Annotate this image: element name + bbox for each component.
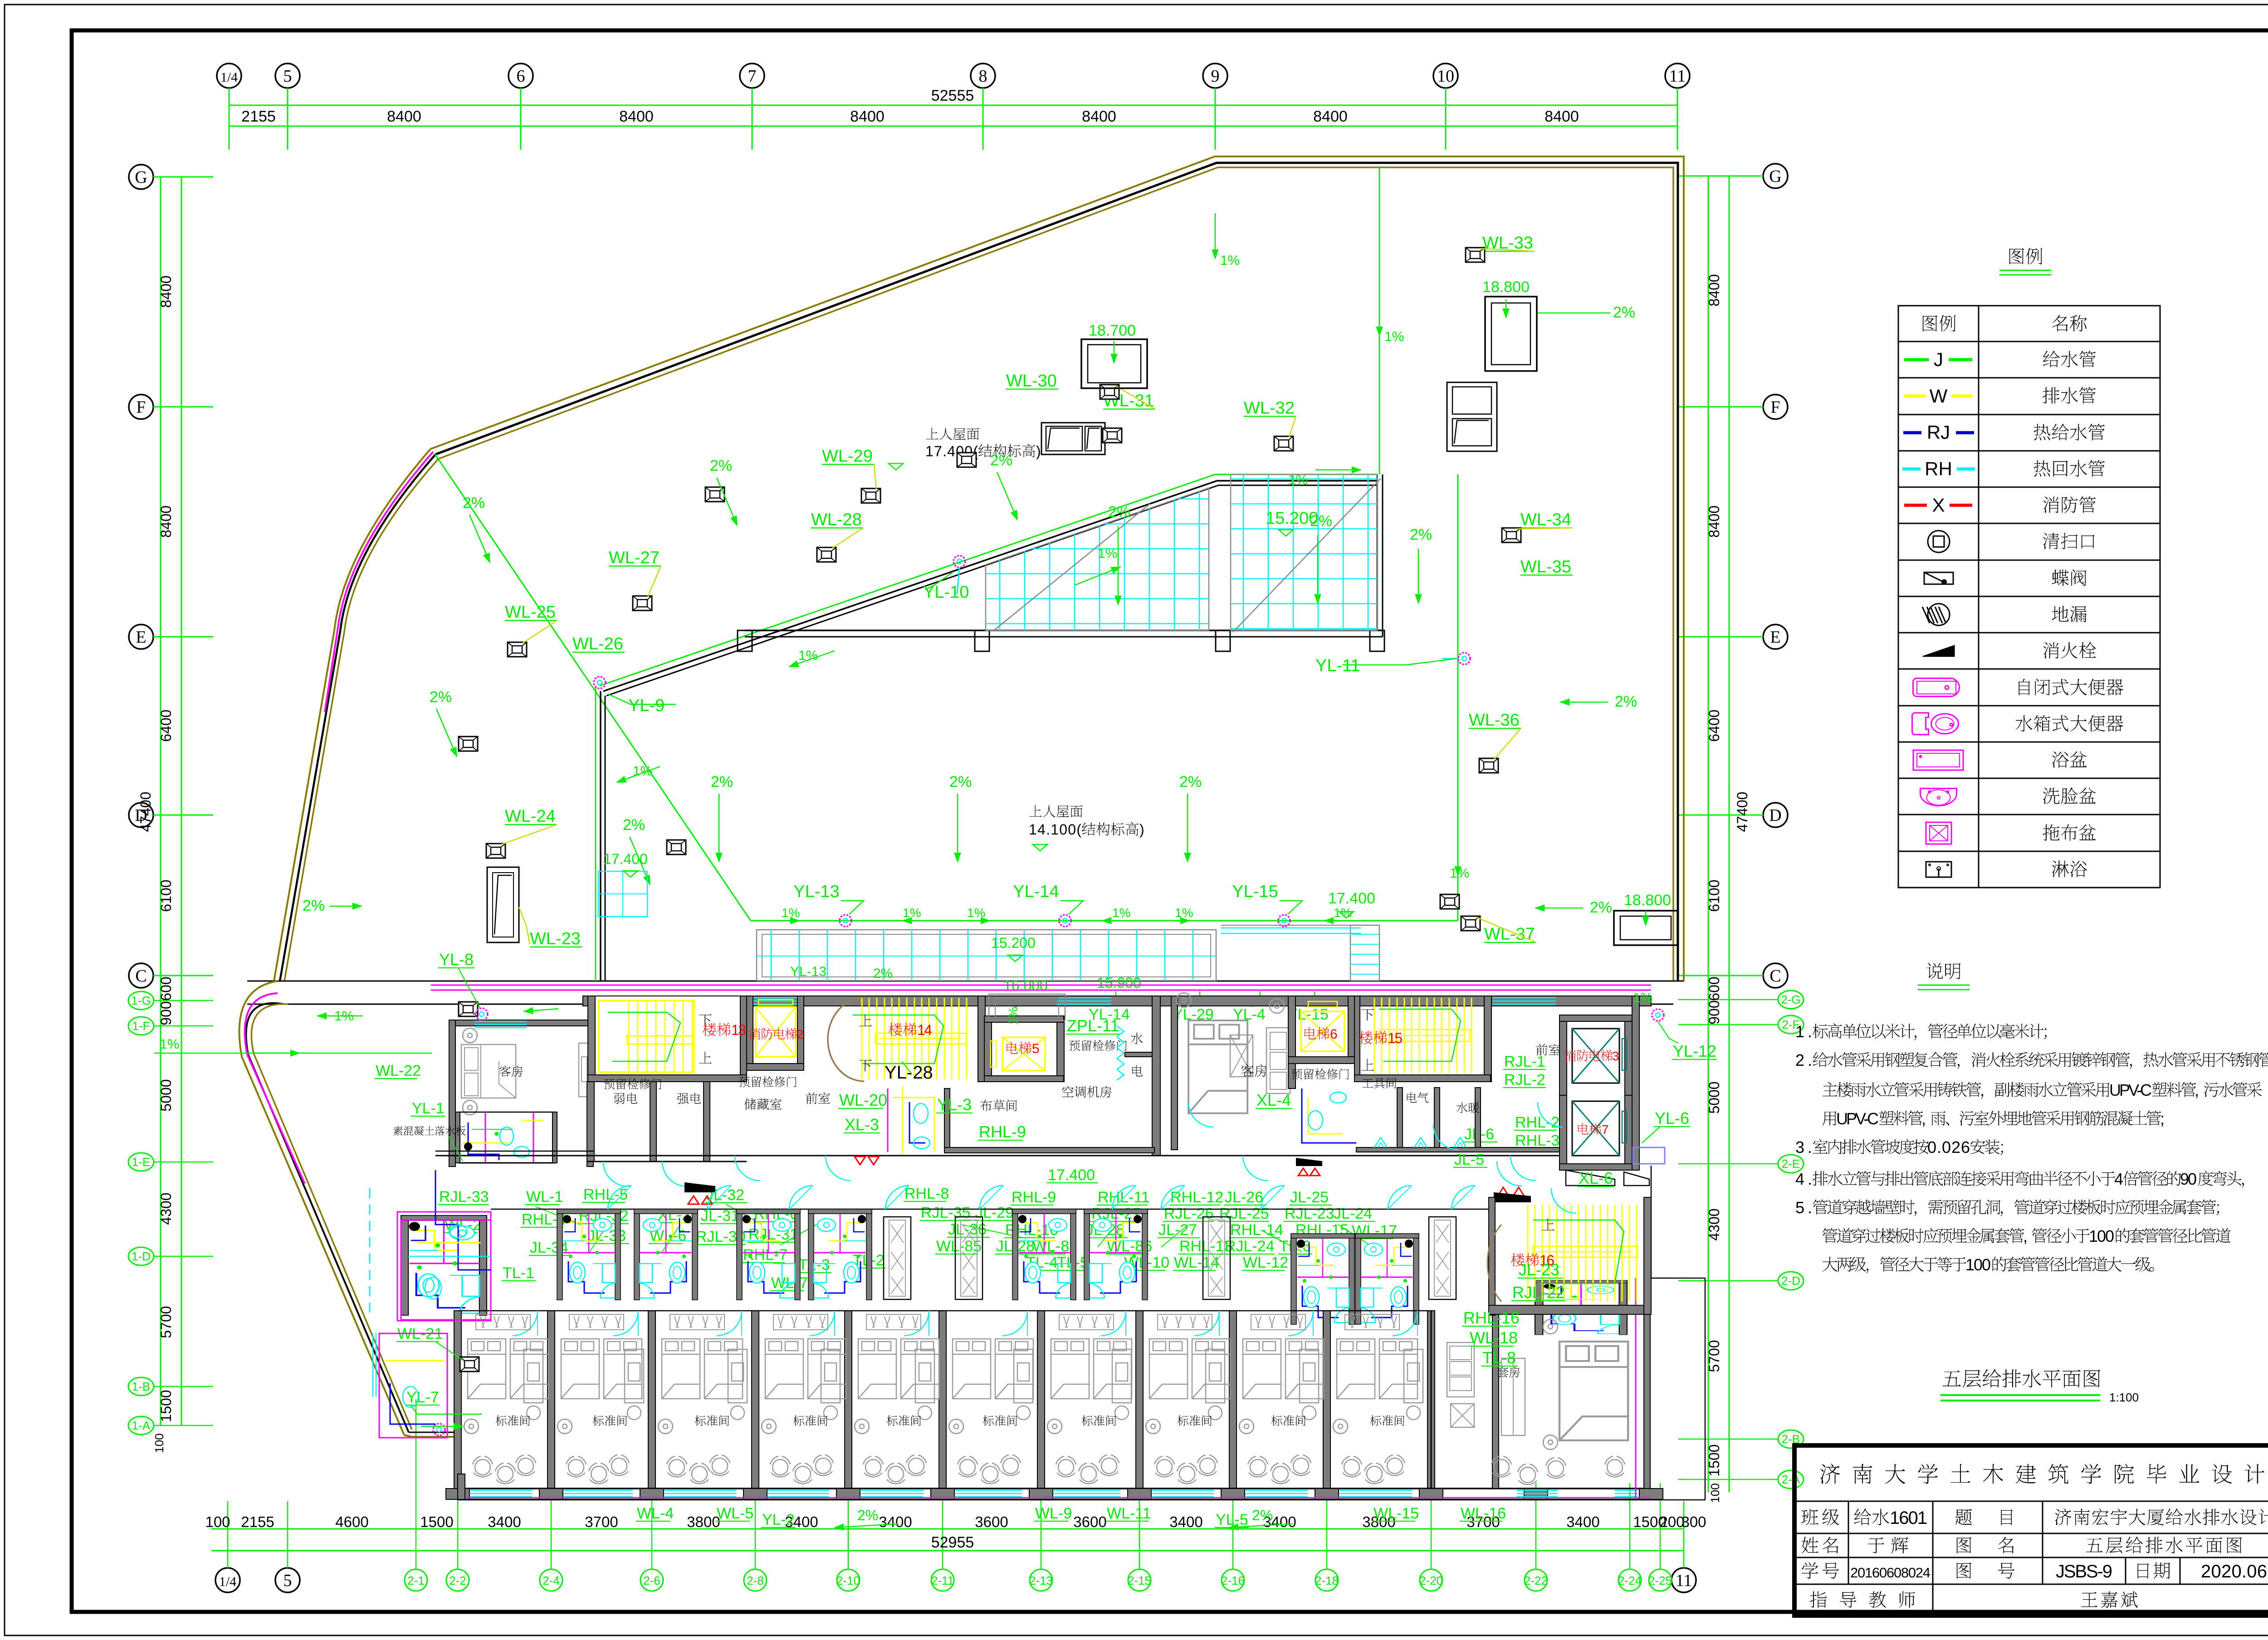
svg-text:3700: 3700 <box>585 1513 618 1530</box>
svg-text:WL-15: WL-15 <box>1374 1505 1419 1522</box>
svg-text:YL-1: YL-1 <box>412 1100 445 1117</box>
svg-text:4.: 4. <box>1795 1170 1812 1188</box>
svg-text:F: F <box>1770 398 1780 417</box>
svg-text:WL-9: WL-9 <box>1035 1505 1072 1522</box>
svg-text:YL-2: YL-2 <box>762 1511 795 1528</box>
svg-text:15: 15 <box>1388 1030 1403 1046</box>
svg-text:1/4: 1/4 <box>220 70 238 85</box>
svg-text:RHL-5: RHL-5 <box>583 1186 628 1203</box>
svg-text:WL-26: WL-26 <box>572 635 623 654</box>
svg-text:17.400: 17.400 <box>1048 1167 1095 1184</box>
svg-text:): ) <box>1139 821 1144 838</box>
svg-text:2-16: 2-16 <box>1221 1574 1245 1587</box>
svg-text:100: 100 <box>152 1433 166 1453</box>
svg-text:5: 5 <box>283 67 292 86</box>
svg-text:2-8: 2-8 <box>747 1574 764 1587</box>
svg-text:0.026: 0.026 <box>1927 1138 1970 1157</box>
svg-text:2%: 2% <box>623 816 645 834</box>
svg-text:1%: 1% <box>798 648 818 663</box>
svg-text:1-B: 1-B <box>132 1380 150 1393</box>
svg-text:8400: 8400 <box>1082 108 1116 125</box>
svg-text:1%: 1% <box>967 906 985 920</box>
svg-text:X: X <box>1932 494 1945 516</box>
svg-text:2-20: 2-20 <box>1419 1574 1443 1587</box>
svg-text:RHL-3: RHL-3 <box>1515 1132 1559 1149</box>
svg-text:JL-29: JL-29 <box>975 1204 1014 1221</box>
svg-text:900: 900 <box>158 1001 174 1025</box>
svg-text:D: D <box>1769 806 1781 825</box>
svg-text:2020.06: 2020.06 <box>2201 1562 2267 1581</box>
svg-text:RHL-9: RHL-9 <box>1012 1189 1056 1206</box>
svg-text:7: 7 <box>748 67 757 86</box>
svg-text:XL-4: XL-4 <box>1256 1091 1291 1109</box>
svg-text:8400: 8400 <box>1545 108 1579 125</box>
svg-text:2%: 2% <box>1108 503 1130 521</box>
svg-text:6400: 6400 <box>158 709 174 742</box>
svg-text:2%: 2% <box>857 1507 878 1523</box>
svg-text:2%: 2% <box>710 457 732 474</box>
svg-text:RH: RH <box>1925 458 1952 479</box>
svg-text:;: ; <box>2160 1109 2165 1128</box>
svg-text:E: E <box>136 628 146 647</box>
svg-text:1-E: 1-E <box>132 1155 150 1169</box>
svg-text:1500: 1500 <box>420 1513 453 1530</box>
svg-text:8400: 8400 <box>387 108 421 125</box>
svg-text:C: C <box>1769 966 1781 986</box>
svg-text:2: 2 <box>797 1027 804 1041</box>
svg-text:WL-32: WL-32 <box>1244 399 1295 418</box>
svg-text:WL-4: WL-4 <box>637 1505 674 1522</box>
svg-text:20160608024: 20160608024 <box>1850 1565 1931 1581</box>
svg-text:RJL-23: RJL-23 <box>1285 1205 1334 1222</box>
svg-text:100: 100 <box>2089 1227 2114 1245</box>
svg-text:1-D: 1-D <box>132 1250 151 1263</box>
svg-text:TL-8: TL-8 <box>1482 1348 1516 1367</box>
svg-text:XL-3: XL-3 <box>845 1115 879 1134</box>
svg-text:C: C <box>135 966 147 986</box>
svg-text:2155: 2155 <box>241 1513 274 1530</box>
svg-text:2-G: 2-G <box>1781 993 1800 1006</box>
svg-text:WL-24: WL-24 <box>505 807 556 826</box>
svg-text:1%: 1% <box>1006 1007 1020 1025</box>
svg-text:RJL-1: RJL-1 <box>1504 1053 1545 1070</box>
svg-text:4: 4 <box>2114 1170 2123 1188</box>
svg-text:1%: 1% <box>1175 906 1193 920</box>
svg-text:2%: 2% <box>990 452 1012 469</box>
svg-text:RJL-24: RJL-24 <box>1225 1238 1275 1255</box>
svg-text:W: W <box>1930 385 1948 406</box>
svg-text:F: F <box>136 398 146 417</box>
svg-text:14.100(: 14.100( <box>1029 821 1081 838</box>
svg-text:3600: 3600 <box>1073 1513 1106 1530</box>
svg-text:5.: 5. <box>1795 1198 1812 1217</box>
svg-text:UPV-C: UPV-C <box>1836 1109 1879 1128</box>
svg-text:1-F: 1-F <box>132 1019 150 1033</box>
svg-text:4300: 4300 <box>1706 1208 1722 1240</box>
svg-text:WL-12: WL-12 <box>1243 1254 1288 1271</box>
svg-text:8400: 8400 <box>619 108 654 125</box>
svg-text:RJ: RJ <box>1927 422 1950 443</box>
svg-text:7: 7 <box>1602 1123 1609 1137</box>
svg-text:1.: 1. <box>1795 1022 1812 1041</box>
svg-text:RHL-9: RHL-9 <box>979 1123 1026 1141</box>
svg-text:2%: 2% <box>949 773 972 791</box>
svg-text:YL-8: YL-8 <box>439 950 474 969</box>
svg-text:1601: 1601 <box>1890 1508 1927 1528</box>
svg-text:8400: 8400 <box>1313 108 1348 125</box>
svg-text:1%: 1% <box>1384 329 1404 344</box>
svg-text:13: 13 <box>731 1022 746 1038</box>
svg-text:2%: 2% <box>1615 693 1637 710</box>
svg-text:6400: 6400 <box>1706 709 1722 742</box>
svg-text:8400: 8400 <box>1706 274 1722 306</box>
svg-text:RHL-16: RHL-16 <box>1463 1308 1520 1327</box>
svg-text:YL-15: YL-15 <box>1232 882 1278 901</box>
svg-text:2-22: 2-22 <box>1524 1574 1548 1587</box>
svg-text:3400: 3400 <box>1566 1513 1599 1530</box>
svg-text:JL-26: JL-26 <box>1225 1189 1263 1206</box>
svg-text:WL-30: WL-30 <box>1006 371 1057 390</box>
svg-text:,: , <box>1921 1109 1926 1128</box>
svg-text:1%: 1% <box>1098 546 1117 561</box>
svg-text:2-4: 2-4 <box>543 1574 560 1587</box>
svg-text:52955: 52955 <box>931 1534 974 1551</box>
svg-text:WL-16: WL-16 <box>1461 1505 1506 1522</box>
svg-text:1%: 1% <box>1112 906 1130 920</box>
svg-text:8400: 8400 <box>850 108 885 125</box>
svg-text:WL-14: WL-14 <box>1174 1254 1219 1271</box>
svg-text:3: 3 <box>1612 1049 1619 1063</box>
svg-text:2-E: 2-E <box>1782 1157 1800 1171</box>
svg-text:2-11: 2-11 <box>931 1574 954 1587</box>
svg-text:2-A: 2-A <box>1782 1473 1800 1486</box>
svg-text:YL-11: YL-11 <box>1315 656 1360 675</box>
svg-text:JL-25: JL-25 <box>1290 1189 1329 1206</box>
svg-text:1%: 1% <box>633 764 652 779</box>
svg-text:ZPL-11: ZPL-11 <box>1067 1016 1119 1035</box>
svg-text:90: 90 <box>2180 1170 2197 1188</box>
svg-text:WL-11: WL-11 <box>1107 1505 1151 1522</box>
svg-text:YL-5: YL-5 <box>1216 1511 1248 1528</box>
svg-text:1%: 1% <box>1450 866 1469 881</box>
svg-text:2%: 2% <box>711 773 733 791</box>
svg-text:WL-25: WL-25 <box>505 603 556 622</box>
svg-text:JL-5: JL-5 <box>1454 1151 1484 1168</box>
svg-text:YL-12: YL-12 <box>1673 1042 1716 1060</box>
svg-text:2%: 2% <box>303 897 325 914</box>
svg-text:WL-36: WL-36 <box>1469 711 1520 730</box>
svg-text:1%: 1% <box>1633 991 1652 1005</box>
svg-text:2-25: 2-25 <box>1648 1574 1672 1587</box>
svg-text:WL-27: WL-27 <box>609 548 660 567</box>
svg-text:YL-13: YL-13 <box>793 882 839 901</box>
svg-text:G: G <box>1769 167 1781 186</box>
svg-text:2-13: 2-13 <box>1029 1574 1053 1587</box>
svg-text:1-G: 1-G <box>131 994 151 1007</box>
svg-text:WL-5: WL-5 <box>717 1505 753 1522</box>
svg-text:5: 5 <box>1032 1041 1040 1056</box>
svg-text:2-D: 2-D <box>1781 1274 1800 1288</box>
svg-text:1%: 1% <box>1220 253 1240 268</box>
svg-text:300: 300 <box>1681 1513 1706 1530</box>
svg-text:1%: 1% <box>1334 906 1352 920</box>
svg-text:2155: 2155 <box>241 108 276 125</box>
svg-text:600: 600 <box>158 976 174 1001</box>
svg-text:RHL-14: RHL-14 <box>1230 1221 1283 1239</box>
svg-text:6100: 6100 <box>1706 879 1722 912</box>
svg-text:2-15: 2-15 <box>1128 1574 1151 1587</box>
svg-text:47400: 47400 <box>137 792 154 832</box>
svg-text:JL-24: JL-24 <box>1334 1205 1372 1222</box>
svg-text:8400: 8400 <box>158 275 174 307</box>
svg-text:JL-23: JL-23 <box>1519 1260 1559 1279</box>
svg-text:YL-7: YL-7 <box>406 1389 439 1406</box>
svg-text:RJL-2: RJL-2 <box>1504 1071 1545 1088</box>
svg-text:3400: 3400 <box>488 1513 521 1530</box>
svg-text:2%: 2% <box>1252 1507 1273 1523</box>
svg-text:18.800: 18.800 <box>1624 892 1671 909</box>
svg-text:RJL-33: RJL-33 <box>439 1188 489 1206</box>
svg-text:WL-29: WL-29 <box>822 447 873 466</box>
svg-text:2-24: 2-24 <box>1618 1574 1642 1587</box>
svg-text:2%: 2% <box>1179 773 1202 791</box>
svg-text:3400: 3400 <box>1169 1513 1202 1530</box>
svg-text:100: 100 <box>1965 1255 1991 1274</box>
svg-text:100: 100 <box>205 1513 230 1530</box>
svg-text:900: 900 <box>1706 1000 1722 1024</box>
svg-text:YL-9: YL-9 <box>628 696 665 715</box>
svg-text:2%: 2% <box>1613 304 1635 321</box>
svg-text:6: 6 <box>1330 1027 1338 1042</box>
svg-text:17.400: 17.400 <box>1328 890 1375 907</box>
svg-text:17.400: 17.400 <box>603 851 648 867</box>
svg-text:JSBS-9: JSBS-9 <box>2056 1562 2112 1581</box>
svg-text:52555: 52555 <box>931 87 974 104</box>
svg-text:YL-3: YL-3 <box>937 1095 972 1114</box>
svg-text:2-6: 2-6 <box>643 1574 660 1587</box>
svg-text:8: 8 <box>979 67 987 86</box>
svg-text:UPV-C: UPV-C <box>2109 1081 2152 1099</box>
svg-text:200: 200 <box>1659 1513 1684 1530</box>
svg-text:1%: 1% <box>160 1037 179 1052</box>
svg-text:6: 6 <box>517 67 525 86</box>
svg-text:RJL-22: RJL-22 <box>1512 1283 1565 1302</box>
svg-text:3600: 3600 <box>975 1513 1008 1530</box>
svg-text:600: 600 <box>1706 976 1722 1001</box>
svg-text:YL-13: YL-13 <box>790 964 826 979</box>
svg-text:1500: 1500 <box>158 1390 174 1422</box>
svg-text:WL-34: WL-34 <box>1520 510 1571 529</box>
svg-text:9: 9 <box>1211 67 1220 86</box>
svg-text:5000: 5000 <box>158 1079 174 1111</box>
svg-text:WL-20: WL-20 <box>839 1091 887 1109</box>
svg-text:E: E <box>1770 628 1780 647</box>
svg-text:YL-28: YL-28 <box>885 1063 933 1083</box>
svg-text:47400: 47400 <box>1734 792 1750 832</box>
svg-text:JL-27: JL-27 <box>1158 1221 1197 1239</box>
svg-text:2%: 2% <box>1410 526 1432 543</box>
svg-text:11: 11 <box>1676 1571 1692 1590</box>
svg-text:15.200: 15.200 <box>991 935 1036 951</box>
svg-text:5000: 5000 <box>1706 1081 1722 1113</box>
svg-text:RHL-12: RHL-12 <box>1170 1189 1223 1206</box>
svg-text:18.700: 18.700 <box>1089 322 1136 339</box>
svg-text:YL-10: YL-10 <box>923 583 969 602</box>
svg-text:RHL-8: RHL-8 <box>904 1185 949 1202</box>
svg-text:2-18: 2-18 <box>1315 1574 1339 1587</box>
svg-text:10: 10 <box>1437 67 1454 86</box>
svg-text:TL-1: TL-1 <box>503 1264 534 1282</box>
svg-text:,: , <box>2195 1081 2199 1099</box>
svg-text:JL-31: JL-31 <box>701 1207 739 1225</box>
svg-text:8400: 8400 <box>158 505 174 537</box>
svg-text:1/4: 1/4 <box>219 1574 236 1589</box>
svg-text:2-2: 2-2 <box>449 1574 466 1587</box>
svg-text:1%: 1% <box>903 906 921 920</box>
svg-text:2-10: 2-10 <box>836 1574 860 1587</box>
svg-text:RJL-35: RJL-35 <box>921 1204 971 1221</box>
svg-text:YL-6: YL-6 <box>1655 1109 1689 1127</box>
svg-text:11: 11 <box>1669 67 1686 86</box>
svg-text:WL-23: WL-23 <box>530 929 581 948</box>
svg-text:3400: 3400 <box>879 1513 912 1530</box>
svg-text:WL-28: WL-28 <box>811 510 862 529</box>
svg-text:RHL-2: RHL-2 <box>1515 1114 1559 1131</box>
svg-text:6100: 6100 <box>158 879 174 912</box>
svg-text:14: 14 <box>917 1022 932 1038</box>
svg-text:4600: 4600 <box>335 1513 368 1530</box>
svg-text:3.: 3. <box>1795 1138 1812 1157</box>
svg-text:15.900: 15.900 <box>1097 975 1141 991</box>
svg-text:2.: 2. <box>1795 1051 1812 1069</box>
svg-text:WL-35: WL-35 <box>1520 557 1571 576</box>
svg-text:WL-22: WL-22 <box>376 1062 421 1079</box>
svg-text:18.800: 18.800 <box>1482 278 1530 296</box>
svg-text:1500: 1500 <box>1706 1444 1722 1476</box>
svg-text:2%: 2% <box>1590 899 1612 916</box>
svg-text:5: 5 <box>283 1571 292 1590</box>
svg-text:WL-37: WL-37 <box>1484 925 1535 944</box>
svg-text:1%: 1% <box>782 906 800 920</box>
svg-text:XL-6: XL-6 <box>1579 1169 1613 1187</box>
svg-text:YL-14: YL-14 <box>1013 882 1059 901</box>
svg-text:1:100: 1:100 <box>2109 1391 2139 1404</box>
svg-text:8400: 8400 <box>1706 505 1722 537</box>
svg-text:): ) <box>1036 443 1041 459</box>
svg-text:5700: 5700 <box>1706 1340 1722 1372</box>
svg-text:1-A: 1-A <box>132 1419 151 1432</box>
svg-text:1%: 1% <box>1288 473 1308 488</box>
svg-text:G: G <box>135 168 147 187</box>
svg-text:2%: 2% <box>430 688 452 706</box>
svg-text:WL-1: WL-1 <box>526 1188 563 1206</box>
svg-text:100: 100 <box>1708 1483 1722 1503</box>
svg-text:3800: 3800 <box>687 1513 720 1530</box>
svg-text:J: J <box>1934 349 1943 370</box>
svg-text:2%: 2% <box>873 966 893 981</box>
svg-text:WL-18: WL-18 <box>1470 1328 1518 1347</box>
svg-text:RJL-26: RJL-26 <box>1164 1205 1214 1222</box>
svg-text:2%: 2% <box>1310 512 1332 530</box>
svg-text:4300: 4300 <box>158 1192 174 1225</box>
svg-text:2-1: 2-1 <box>407 1574 425 1587</box>
svg-text:5700: 5700 <box>158 1306 174 1338</box>
svg-text:,: , <box>2023 1227 2028 1245</box>
svg-text:2%: 2% <box>463 494 485 512</box>
